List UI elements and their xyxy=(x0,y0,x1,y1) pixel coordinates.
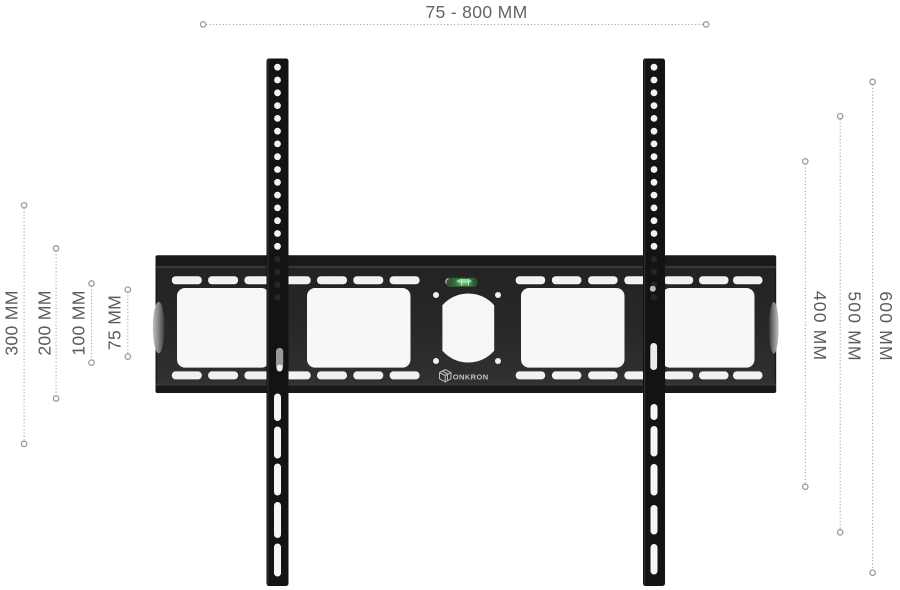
svg-text:75 MM: 75 MM xyxy=(105,295,125,350)
svg-text:200 MM: 200 MM xyxy=(34,290,54,355)
svg-text:500 MM: 500 MM xyxy=(844,291,864,361)
svg-text:300 MM: 300 MM xyxy=(2,290,22,355)
svg-text:ONKRON: ONKRON xyxy=(453,372,489,381)
svg-text:600 MM: 600 MM xyxy=(876,291,896,361)
svg-text:75 - 800 MM: 75 - 800 MM xyxy=(425,2,527,22)
svg-text:100 MM: 100 MM xyxy=(68,290,88,355)
svg-text:400 MM: 400 MM xyxy=(810,291,830,361)
